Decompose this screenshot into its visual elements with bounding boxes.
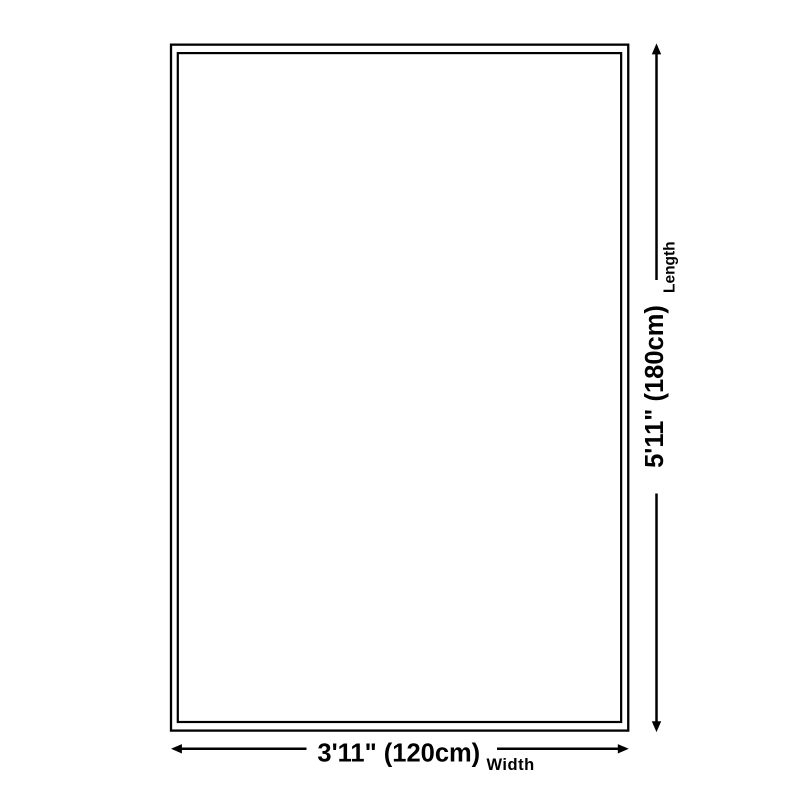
svg-text:3'11" (120cm): 3'11" (120cm) <box>317 740 480 768</box>
svg-text:5'11" (180cm): 5'11" (180cm) <box>641 305 669 468</box>
svg-text:Width: Width <box>487 756 535 774</box>
svg-text:Length: Length <box>662 241 679 293</box>
